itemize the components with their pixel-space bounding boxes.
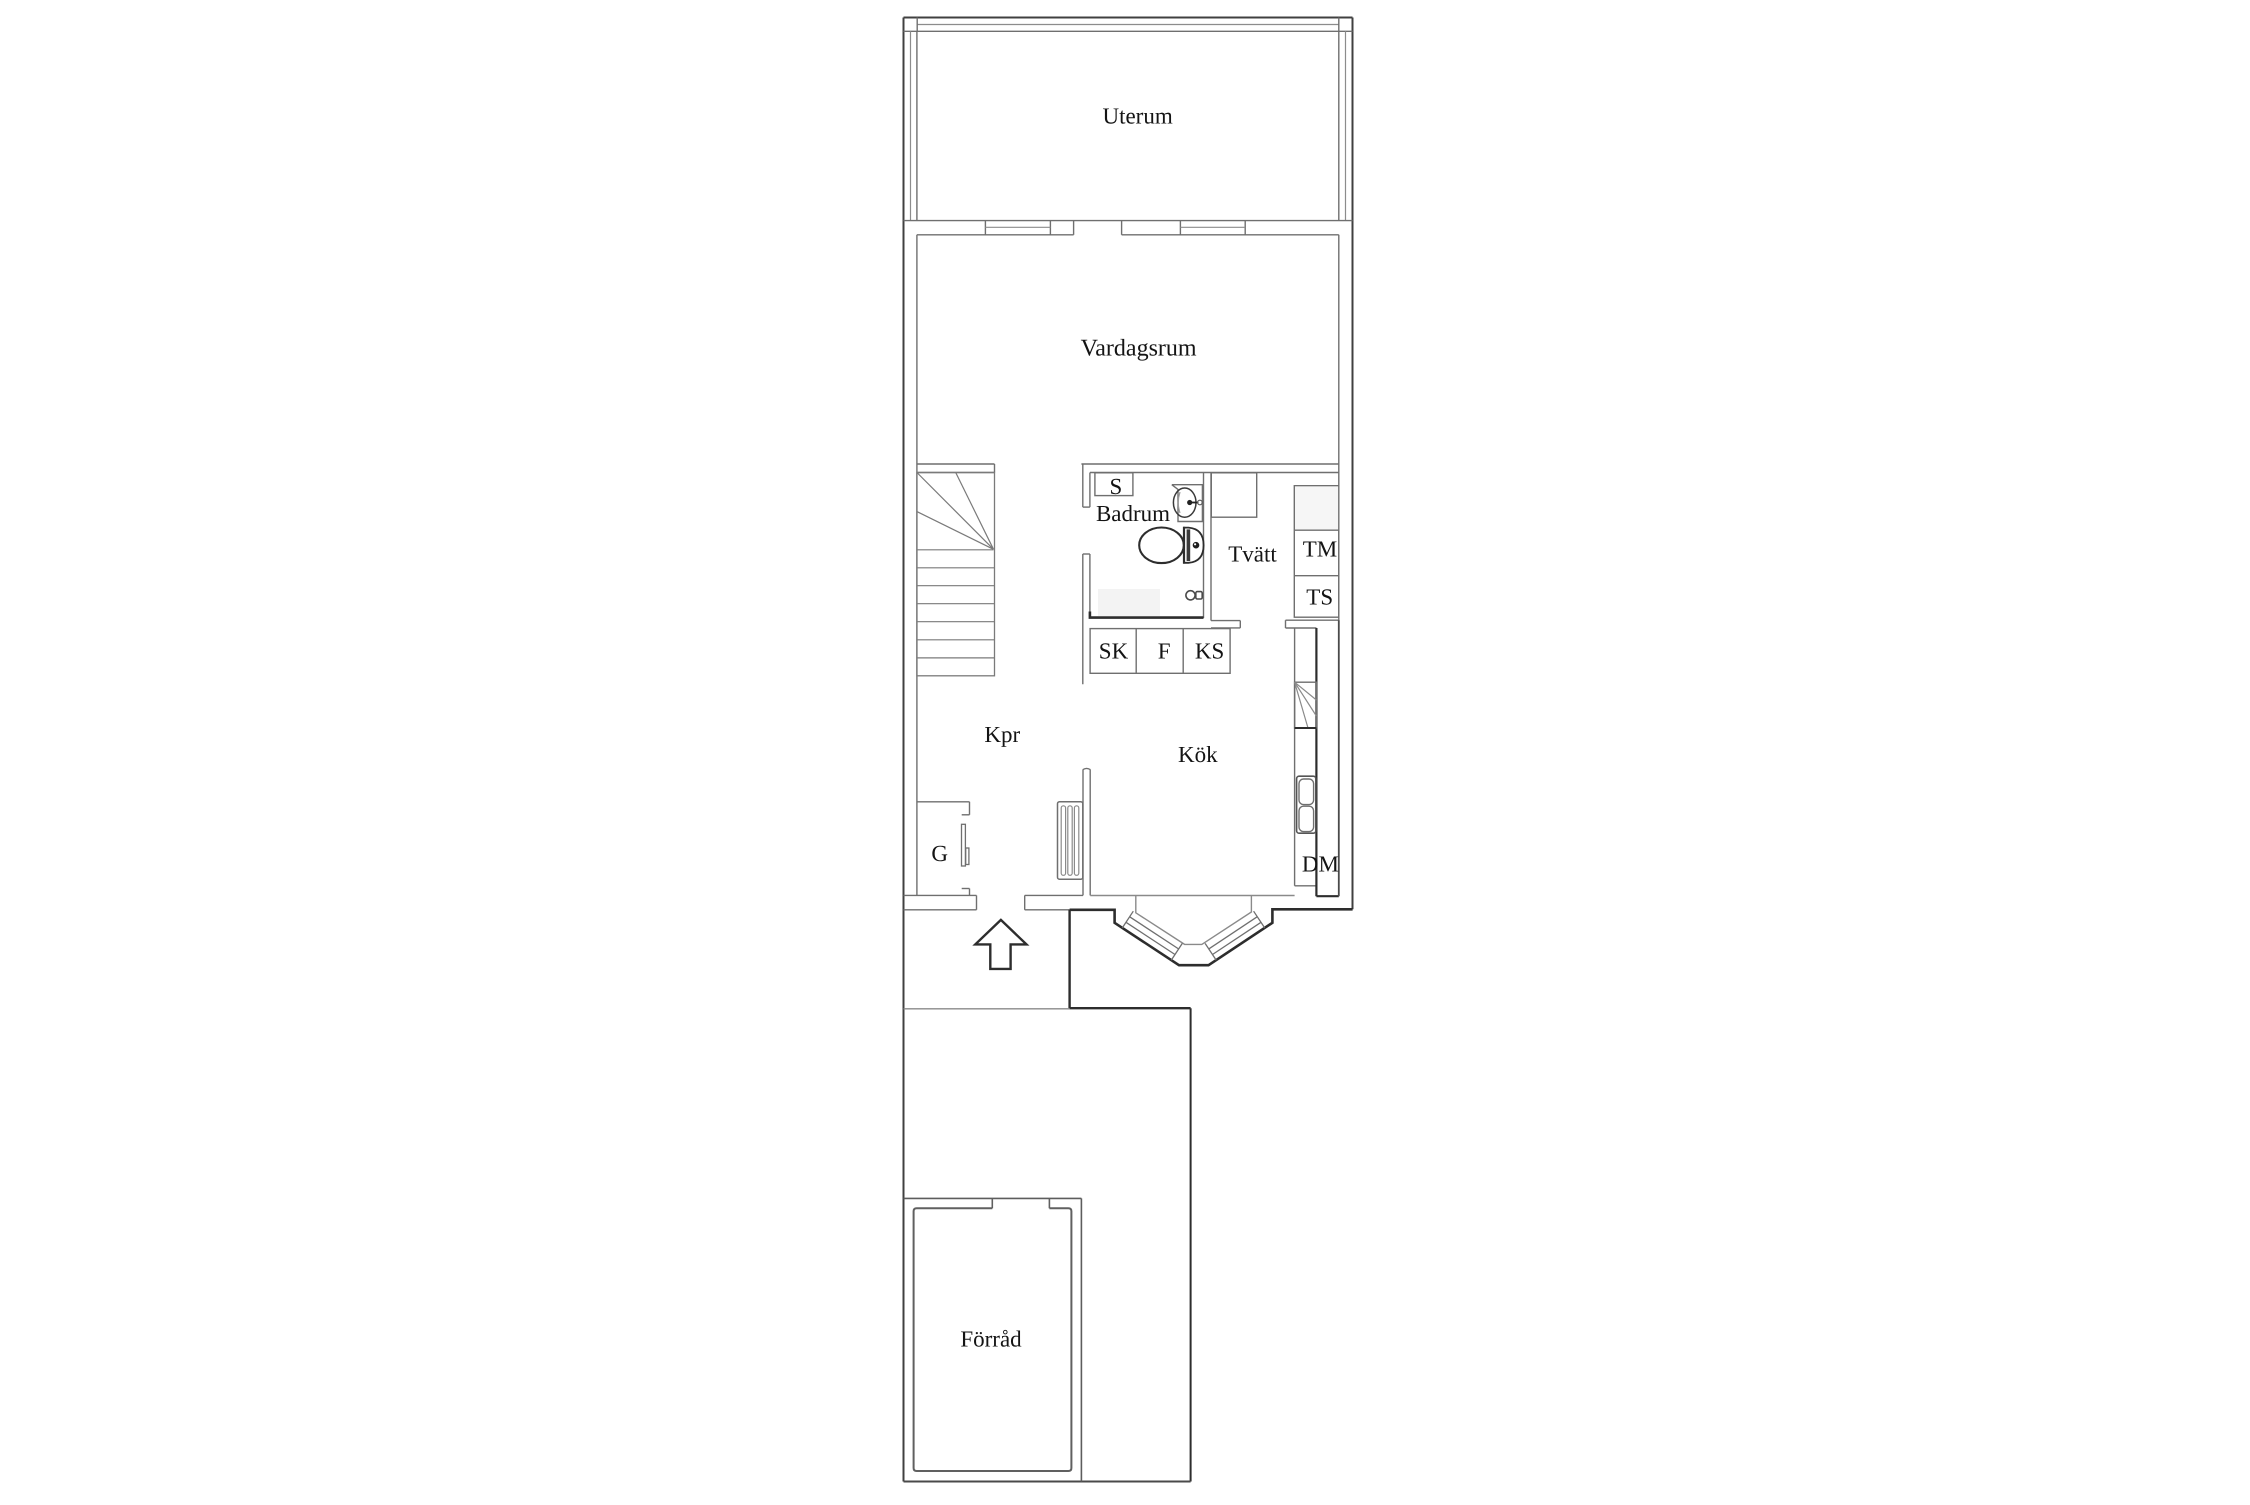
svg-text:G: G <box>931 841 948 866</box>
svg-text:TS: TS <box>1306 585 1333 610</box>
svg-text:Kpr: Kpr <box>984 722 1020 747</box>
svg-text:SK: SK <box>1099 639 1129 664</box>
svg-text:DM: DM <box>1302 851 1339 876</box>
svg-text:Tvätt: Tvätt <box>1228 542 1277 567</box>
svg-text:S: S <box>1110 474 1123 499</box>
svg-text:KS: KS <box>1195 639 1224 664</box>
svg-text:Uterum: Uterum <box>1102 103 1172 128</box>
svg-text:Kök: Kök <box>1178 742 1218 767</box>
svg-text:Förråd: Förråd <box>960 1327 1022 1352</box>
svg-text:F: F <box>1158 639 1171 664</box>
svg-text:Badrum: Badrum <box>1096 501 1170 526</box>
svg-text:TM: TM <box>1303 536 1338 561</box>
svg-text:Vardagsrum: Vardagsrum <box>1081 336 1197 362</box>
